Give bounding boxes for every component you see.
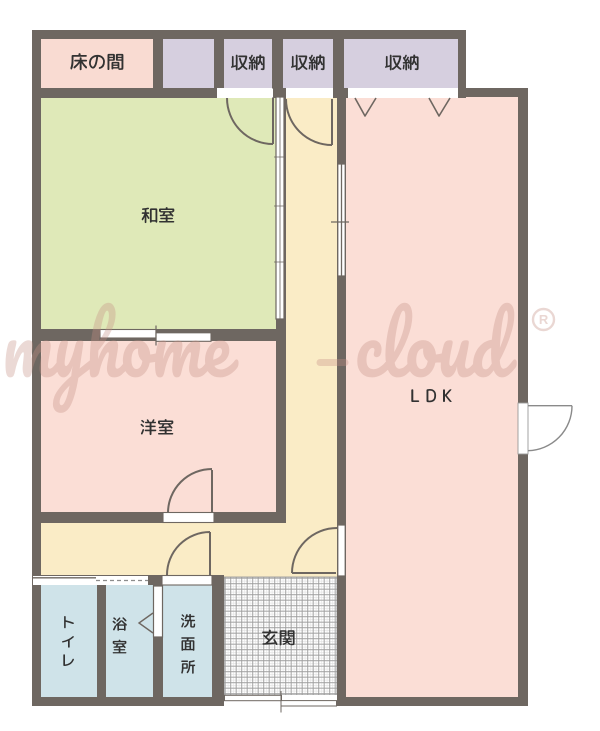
svg-text:R: R <box>539 312 549 327</box>
